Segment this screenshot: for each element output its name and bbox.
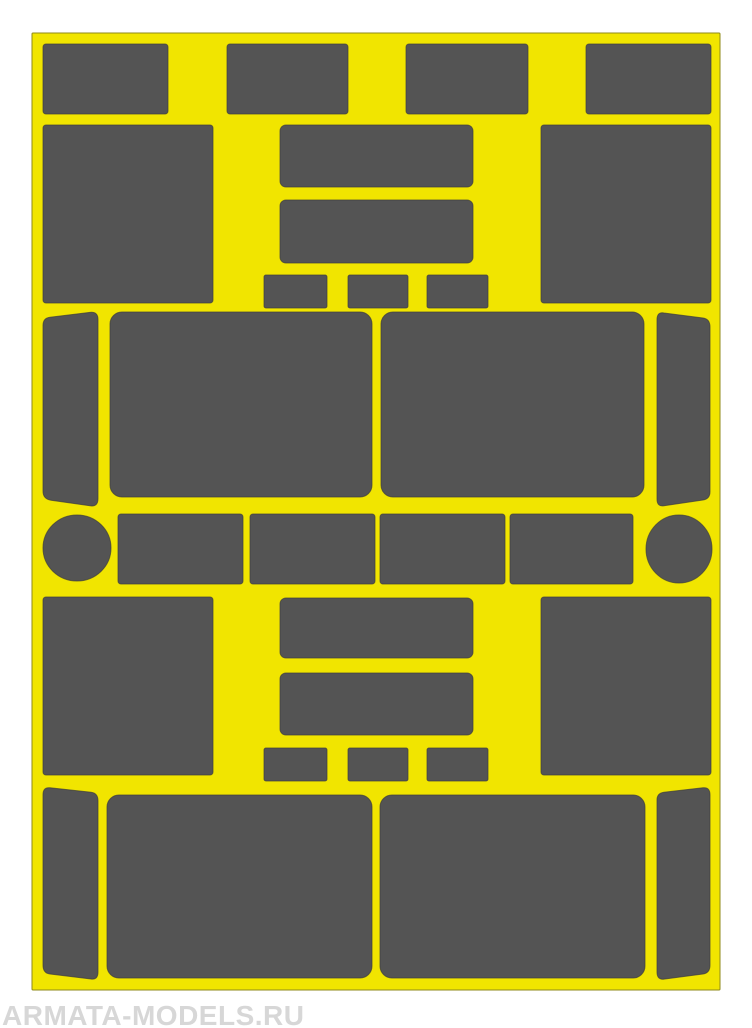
upper-small-square-3: [427, 275, 488, 308]
bottom-left-strip: [43, 788, 98, 979]
top-row-rect-3: [406, 44, 528, 114]
lower-center-band-1: [280, 598, 473, 658]
left-disc: [43, 515, 111, 581]
upper-right-panel: [541, 125, 711, 303]
top-row-rect-2: [227, 44, 348, 114]
bottom-right-strip: [657, 788, 710, 979]
mid-left-strip: [43, 312, 98, 506]
upper-center-band-1: [280, 125, 473, 187]
mid-row-rect-4: [510, 514, 633, 584]
mid-row-rect-2: [250, 514, 375, 584]
bottom-window-right: [380, 795, 645, 978]
top-row-rect-1: [43, 44, 168, 114]
bottom-window-left: [107, 795, 372, 978]
mid-window-left: [110, 312, 372, 497]
lower-left-panel: [43, 597, 213, 775]
mid-row-rect-3: [380, 514, 505, 584]
mid-row-rect-1: [118, 514, 243, 584]
lower-small-square-3: [427, 748, 488, 781]
lower-center-band-2: [280, 673, 473, 735]
upper-small-square-2: [348, 275, 408, 308]
lower-small-square-1: [264, 748, 327, 781]
upper-small-square-1: [264, 275, 327, 308]
mid-right-strip: [657, 313, 710, 506]
lower-right-panel: [541, 597, 711, 775]
watermark: ARMATA-MODELS.RU: [2, 1002, 304, 1028]
decal-shapes-layer: [32, 33, 720, 990]
top-row-rect-4: [586, 44, 711, 114]
upper-center-band-2: [280, 200, 473, 263]
lower-small-square-2: [348, 748, 408, 781]
decal-sheet-svg: [0, 0, 752, 1028]
upper-left-panel: [43, 125, 213, 303]
mid-window-right: [381, 312, 644, 497]
right-disc: [646, 515, 712, 583]
product-image: ARMATA-MODELS.RU: [0, 0, 752, 1028]
